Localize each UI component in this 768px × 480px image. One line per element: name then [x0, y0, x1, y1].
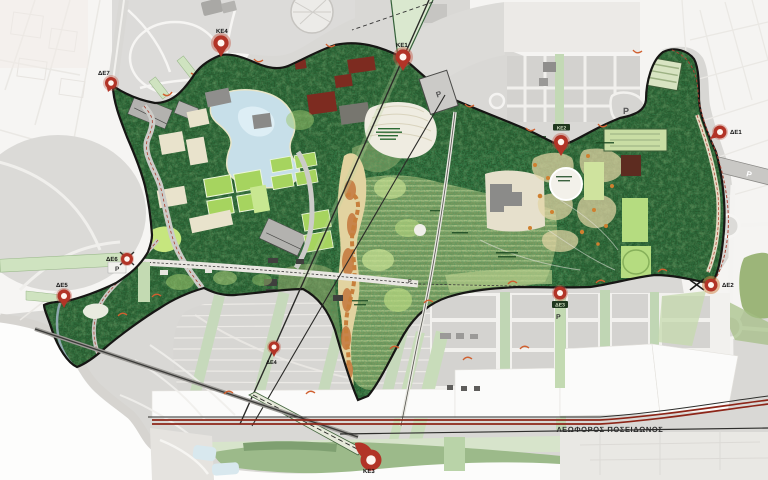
- svg-text:P: P: [556, 314, 561, 321]
- svg-text:ΚΕ3: ΚΕ3: [363, 468, 375, 475]
- svg-text:P: P: [623, 106, 629, 116]
- svg-text:ΔΕ5: ΔΕ5: [56, 282, 68, 289]
- svg-text:ΔΕ6: ΔΕ6: [106, 256, 118, 263]
- svg-text:ΔΕ4: ΔΕ4: [266, 360, 278, 366]
- svg-text:ΛΕΩΦΟΡΟΣ ΠΟΣΕΙΔΩΝΟΣ: ΛΕΩΦΟΡΟΣ ΠΟΣΕΙΔΩΝΟΣ: [557, 425, 664, 434]
- svg-text:P: P: [408, 279, 412, 285]
- svg-text:ΚΕ4: ΚΕ4: [216, 28, 228, 35]
- svg-text:ΔΕ3: ΔΕ3: [555, 303, 565, 309]
- svg-text:ΔΕ7: ΔΕ7: [98, 70, 110, 77]
- svg-text:ΚΕ2: ΚΕ2: [557, 125, 567, 131]
- svg-text:ΔΕ2: ΔΕ2: [722, 282, 734, 289]
- svg-text:ΚΕ1: ΚΕ1: [396, 42, 408, 49]
- svg-text:ΔΕ1: ΔΕ1: [730, 129, 742, 136]
- svg-text:P: P: [115, 266, 120, 273]
